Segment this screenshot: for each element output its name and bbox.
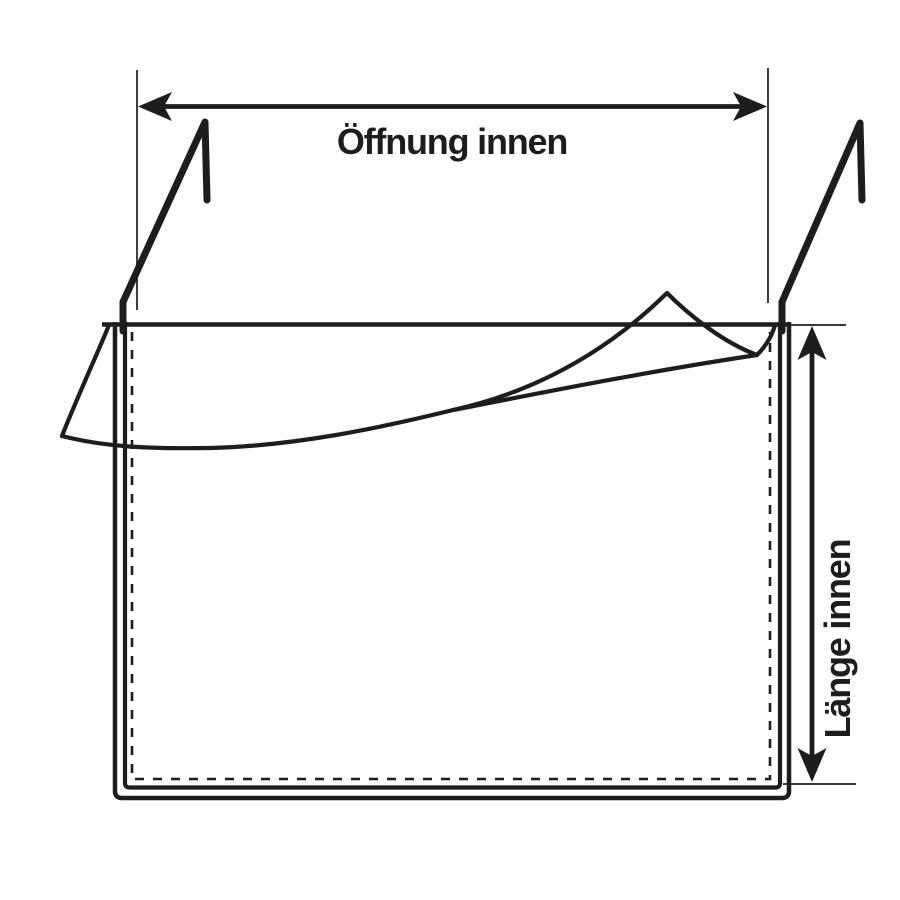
- flap-right-edge-curve: [757, 325, 775, 355]
- hook-left: [123, 122, 207, 331]
- pouch-outer-border: [115, 322, 789, 798]
- pouch-seam-dashed-line: [132, 332, 770, 779]
- pouch-inner-border: [125, 322, 780, 788]
- hook-right: [782, 123, 862, 331]
- opening-dimension-label: Öffnung innen: [337, 121, 567, 163]
- length-dimension-label: Länge innen: [817, 540, 859, 739]
- flap-left-edge-curve: [62, 325, 109, 436]
- flap-crease-line: [453, 293, 667, 410]
- diagram-stage: Öffnung innen Länge innen: [0, 0, 900, 900]
- flap-bottom-edge-curve: [62, 355, 757, 448]
